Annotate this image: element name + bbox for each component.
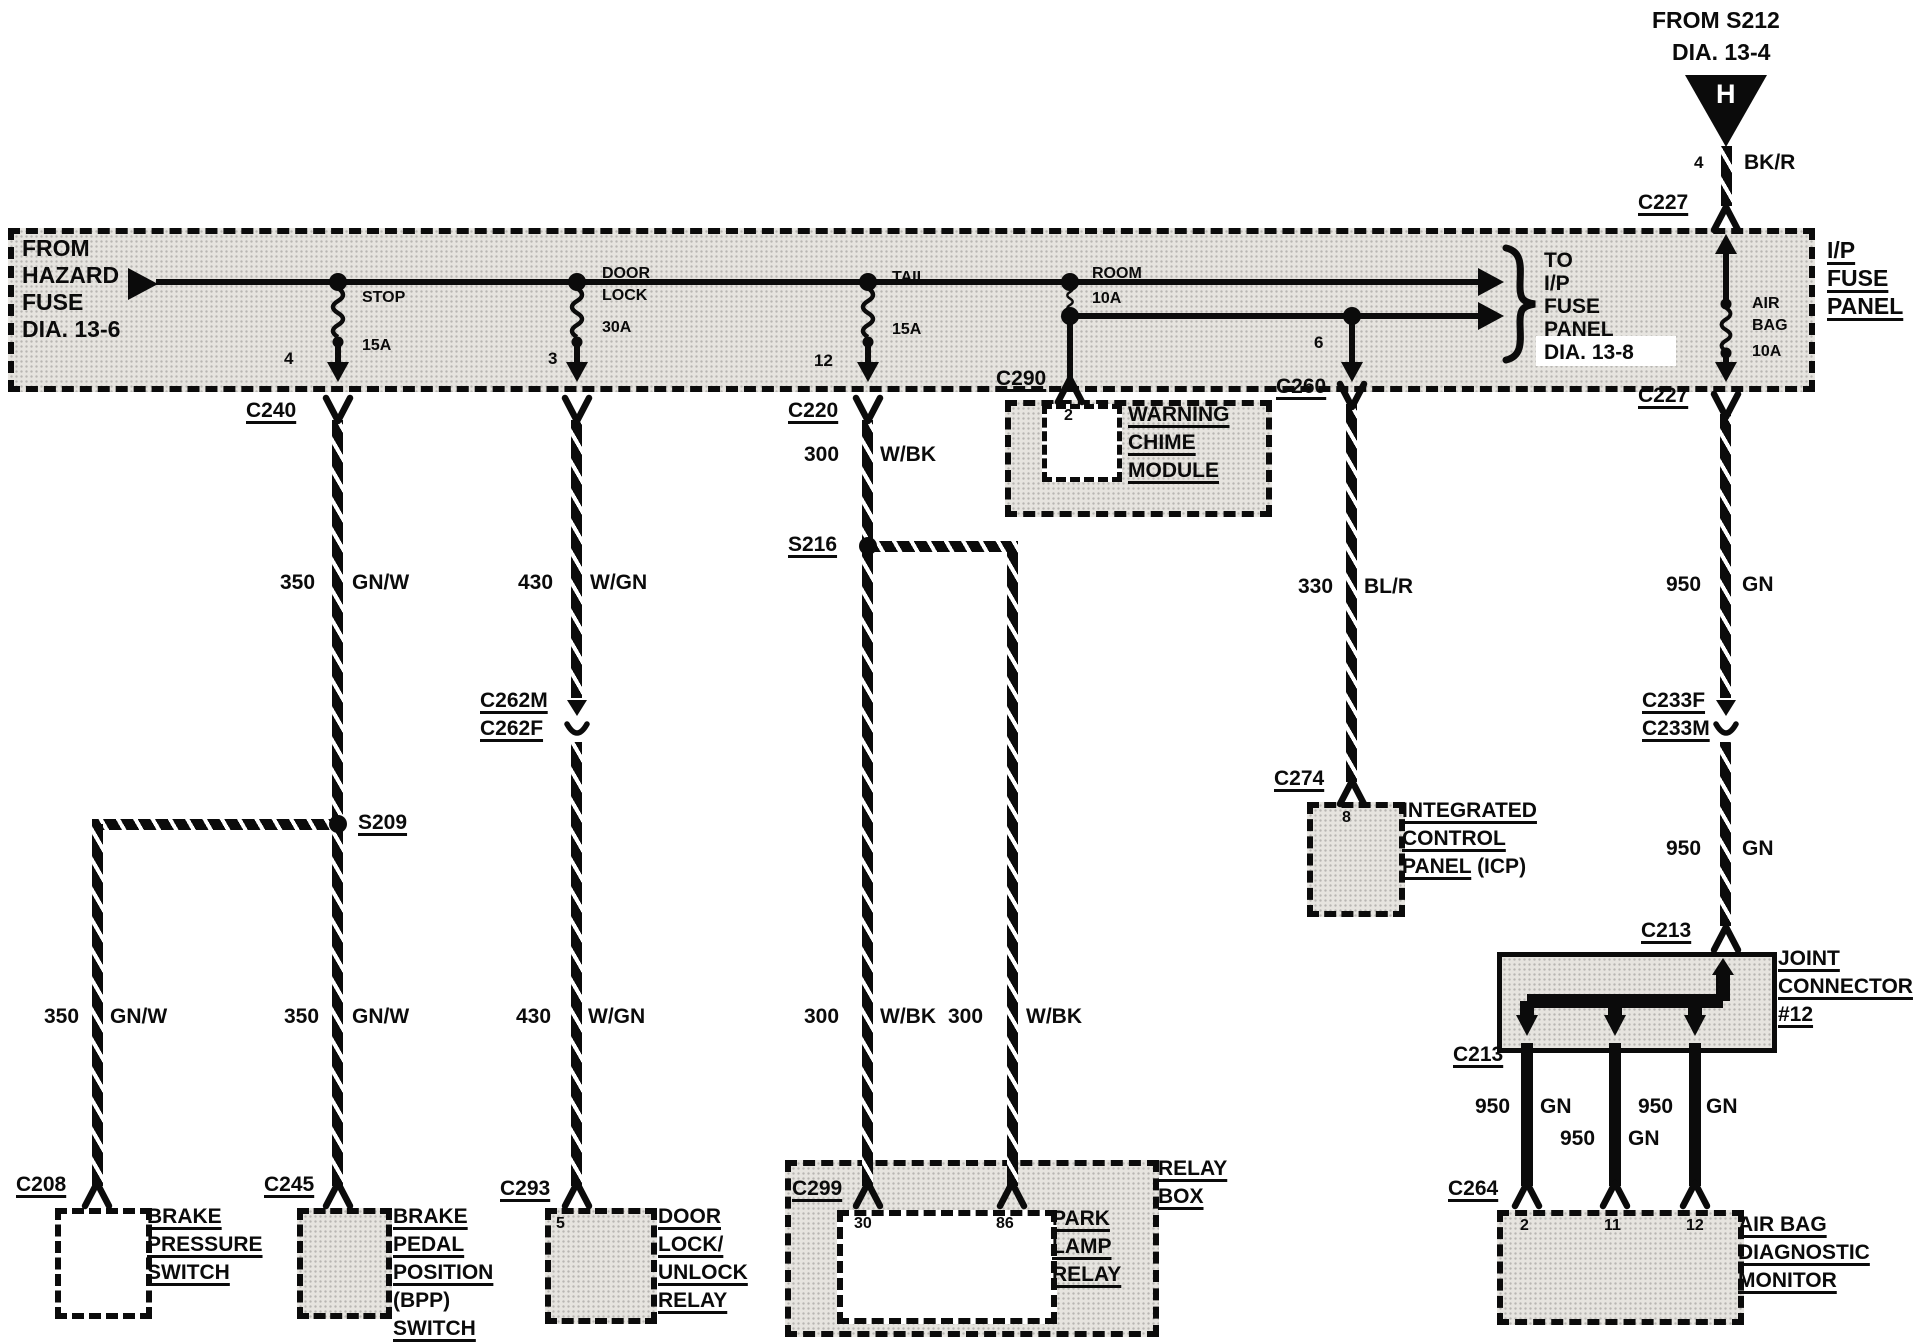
- pin-6: 6: [1314, 334, 1323, 352]
- connector-fork-c274-icon: [1337, 780, 1367, 806]
- connector-fork-c293-icon: [562, 1182, 592, 1208]
- bpp-switch-box: [297, 1208, 392, 1319]
- wire-350-main: [332, 420, 343, 1186]
- wire-950-lower: [1720, 742, 1731, 926]
- fuse-door-lock-end-dot: [572, 337, 583, 348]
- monitor-pin-2: 2: [1520, 1218, 1529, 1235]
- airbag-wire-upper: [1723, 252, 1729, 304]
- circuit-950-d1-color: GN: [1540, 1096, 1572, 1118]
- circuit-950-mid-color: GN: [1742, 838, 1774, 860]
- connector-c264: C264: [1448, 1178, 1498, 1200]
- fuse-door-lock-name2: LOCK: [602, 288, 647, 305]
- panel-name-1: I/P: [1827, 238, 1855, 262]
- circuit-950-upper-id: 950: [1666, 574, 1701, 596]
- monitor-pin-11: 11: [1604, 1218, 1621, 1235]
- circuit-300-lower2-id: 300: [948, 1006, 983, 1028]
- icp-3: PANEL (ICP): [1402, 856, 1526, 878]
- fuse-airbag-name2: BAG: [1752, 318, 1788, 335]
- circuit-950-d3-color: GN: [1706, 1096, 1738, 1118]
- monitor-pin-12: 12: [1686, 1218, 1704, 1235]
- connector-c227-top: C227: [1638, 192, 1688, 214]
- fuse-stop-name: STOP: [362, 290, 405, 307]
- warning-chime-pin: 2: [1064, 408, 1073, 425]
- wire-950-upper: [1720, 414, 1731, 698]
- monitor-2: DIAGNOSTIC: [1738, 1242, 1870, 1264]
- splice-s209-label: S209: [358, 812, 407, 834]
- fuse-tail-end-dot: [863, 337, 874, 348]
- splice-s209-dot: [329, 815, 347, 833]
- connector-fork-c299-right-icon: [997, 1182, 1027, 1208]
- wire-430-lower: [571, 742, 582, 1186]
- wire-950-drop-2: [1609, 1043, 1621, 1186]
- brake-pressure-1: BRAKE: [147, 1206, 222, 1228]
- bpp-1: BRAKE: [393, 1206, 468, 1228]
- joint-connector-2: CONNECTOR: [1778, 976, 1913, 998]
- connector-fork-c260-icon: [1337, 382, 1367, 408]
- connector-fork-c290-icon: [1055, 378, 1085, 404]
- icp-2: CONTROL: [1402, 828, 1506, 850]
- airbag-up-arrow-icon: [1715, 234, 1737, 254]
- fuse-stop-rating: 15A: [362, 338, 391, 355]
- inline-connector-c262-icon: [564, 698, 590, 744]
- connector-c240: C240: [246, 400, 296, 422]
- door-lock-relay-1: DOOR: [658, 1206, 721, 1228]
- monitor-1: AIR BAG: [1738, 1214, 1827, 1236]
- wire-330: [1346, 404, 1357, 782]
- icp-box: [1307, 802, 1405, 917]
- circuit-350-lower-id: 350: [284, 1006, 319, 1028]
- panel-name-2: FUSE: [1827, 266, 1888, 290]
- connector-c290: C290: [996, 368, 1046, 390]
- brake-pressure-switch-box: [55, 1208, 152, 1319]
- connector-fork-c264-2-icon: [1600, 1182, 1630, 1208]
- circuit-950-d2-color: GN: [1628, 1128, 1660, 1150]
- circuit-430-upper-color: W/GN: [590, 572, 647, 594]
- connector-c245: C245: [264, 1174, 314, 1196]
- to-panel-3: FUSE: [1544, 296, 1600, 318]
- circuit-300-lower1-id: 300: [804, 1006, 839, 1028]
- warning-chime-connector-box: [1042, 404, 1122, 482]
- park-lamp-relay-pin-30: 30: [854, 1216, 872, 1233]
- connector-c260: C260: [1276, 376, 1326, 398]
- connector-fork-c220-icon: [853, 396, 883, 422]
- circuit-350-lower-color: GN/W: [352, 1006, 409, 1028]
- circuit-950-upper-color: GN: [1742, 574, 1774, 596]
- circuit-300-upper-color: W/BK: [880, 444, 936, 466]
- from-hazard-4: DIA. 13-6: [22, 317, 120, 341]
- connector-fork-c245-icon: [323, 1182, 353, 1208]
- connector-c208: C208: [16, 1174, 66, 1196]
- fuse-tail-rating: 15A: [892, 322, 921, 339]
- splice-s216-dot: [859, 537, 877, 555]
- bpp-2: PEDAL: [393, 1234, 464, 1256]
- monitor-3: MONITOR: [1738, 1270, 1837, 1292]
- connector-fork-c227-top-icon: [1711, 206, 1741, 232]
- connector-c227-bottom: C227: [1638, 385, 1688, 407]
- fuse-door-lock-icon: [567, 286, 587, 338]
- to-panel-1: TO: [1544, 250, 1573, 272]
- wire-300-main: [862, 420, 873, 1186]
- brake-pressure-3: SWITCH: [147, 1262, 230, 1284]
- pin-stop: 4: [284, 350, 293, 368]
- feed-arrowhead-bottom-icon: [1478, 302, 1504, 330]
- connector-fork-c264-3-icon: [1680, 1182, 1710, 1208]
- pin-tail: 12: [814, 352, 833, 370]
- from-hazard-2: HAZARD: [22, 263, 119, 287]
- door-lock-relay-4: RELAY: [658, 1290, 727, 1312]
- icp-3-name: PANEL: [1402, 855, 1471, 878]
- connector-c293: C293: [500, 1178, 550, 1200]
- wire-430-upper: [571, 420, 582, 698]
- inline-connector-c233-icon: [1713, 698, 1739, 744]
- bpp-4: (BPP): [393, 1290, 450, 1312]
- connector-fork-c213-icon: [1711, 926, 1741, 952]
- to-panel-2: I/P: [1544, 273, 1570, 295]
- connector-c213-bottom: C213: [1453, 1044, 1503, 1066]
- feed-arrowhead-top-icon: [1478, 268, 1504, 296]
- connector-c233f: C233F: [1642, 690, 1705, 712]
- joint-connector-1: JOINT: [1778, 948, 1840, 970]
- door-lock-exit-arrow-icon: [566, 362, 588, 382]
- connector-c274: C274: [1274, 768, 1324, 790]
- connector-fork-c240-icon: [323, 396, 353, 422]
- fuse-tail-icon: [858, 286, 878, 338]
- to-panel-4: PANEL: [1544, 319, 1614, 341]
- stop-exit-arrow-icon: [327, 362, 349, 382]
- fuse-airbag-icon: [1716, 306, 1736, 352]
- fuse-door-lock-rating: 30A: [602, 320, 631, 337]
- warning-chime-2: CHIME: [1128, 432, 1196, 454]
- splice-s216-label: S216: [788, 534, 837, 556]
- wire-s216-branch-h: [868, 541, 1018, 552]
- from-s212-label: FROM S212: [1652, 8, 1780, 32]
- circuit-950-d3-id: 950: [1638, 1096, 1673, 1118]
- fuse-door-lock-name1: DOOR: [602, 266, 650, 283]
- panel-name-3: PANEL: [1827, 294, 1903, 318]
- circuit-350-upper-id: 350: [280, 572, 315, 594]
- relay-box-label-1: RELAY: [1158, 1158, 1227, 1180]
- pin-door-lock: 3: [548, 350, 557, 368]
- triangle-code: H: [1716, 80, 1736, 108]
- tail-exit-arrow-icon: [857, 362, 879, 382]
- connector-c233m: C233M: [1642, 718, 1710, 740]
- junction-pin6: [1343, 307, 1361, 325]
- connector-c262m: C262M: [480, 690, 548, 712]
- fuse-airbag-name1: AIR: [1752, 296, 1780, 313]
- fuse-room-rating: 10A: [1092, 291, 1121, 308]
- main-feed-wire: [156, 279, 1480, 285]
- wire-s209-branch-v: [92, 824, 103, 1186]
- from-hazard-3: FUSE: [22, 290, 83, 314]
- fuse-stop-end-dot: [333, 337, 344, 348]
- to-panel-5: DIA. 13-8: [1544, 342, 1634, 364]
- circuit-430-lower-id: 430: [516, 1006, 551, 1028]
- connector-fork-c299-left-icon: [853, 1182, 883, 1208]
- circuit-350-left-id: 350: [44, 1006, 79, 1028]
- fuse-room-icon: [1060, 284, 1080, 312]
- circuit-300-upper-id: 300: [804, 444, 839, 466]
- circuit-350-left-color: GN/W: [110, 1006, 167, 1028]
- connector-c220: C220: [788, 400, 838, 422]
- fuse-stop-icon: [328, 286, 348, 338]
- pin-4-top: 4: [1694, 154, 1703, 172]
- room-drop-wire: [1067, 318, 1073, 378]
- connector-c262f: C262F: [480, 718, 543, 740]
- circuit-bkr-label: BK/R: [1744, 152, 1795, 174]
- park-lamp-relay-pin-86: 86: [996, 1216, 1014, 1233]
- icp-1: INTEGRATED: [1402, 800, 1537, 822]
- warning-chime-1: WARNING: [1128, 404, 1230, 426]
- connector-fork-door-lock-icon: [562, 396, 592, 422]
- wire-950-drop-1: [1521, 1043, 1533, 1186]
- bpp-3: POSITION: [393, 1262, 493, 1284]
- room-branch-wire: [1070, 313, 1480, 319]
- circuit-300-lower1-color: W/BK: [880, 1006, 936, 1028]
- bpp-5: SWITCH: [393, 1318, 476, 1340]
- park-lamp-relay-1: PARK: [1052, 1208, 1110, 1230]
- joint-connector-bus-icon: [1502, 957, 1762, 1038]
- circuit-430-lower-color: W/GN: [588, 1006, 645, 1028]
- connector-c299: C299: [792, 1178, 842, 1200]
- circuit-300-lower2-color: W/BK: [1026, 1006, 1082, 1028]
- door-lock-relay-2: LOCK/: [658, 1234, 723, 1256]
- circuit-950-d2-id: 950: [1560, 1128, 1595, 1150]
- from-hazard-1: FROM: [22, 236, 90, 260]
- door-lock-relay-pin: 5: [556, 1216, 565, 1233]
- wire-s209-branch-h: [92, 819, 332, 830]
- joint-connector-3: #12: [1778, 1004, 1813, 1026]
- connector-fork-c208-icon: [82, 1182, 112, 1208]
- connector-c213-top: C213: [1641, 920, 1691, 942]
- airbag-exit-arrow-icon: [1715, 362, 1737, 382]
- from-s212-dia: DIA. 13-4: [1672, 40, 1770, 64]
- park-lamp-relay-3: RELAY: [1052, 1264, 1121, 1286]
- icp-pin: 8: [1342, 810, 1351, 827]
- connector-fork-c227-bottom-icon: [1711, 392, 1741, 418]
- source-arrow-icon: [128, 268, 158, 300]
- brake-pressure-2: PRESSURE: [147, 1234, 263, 1256]
- warning-chime-3: MODULE: [1128, 460, 1219, 482]
- park-lamp-relay-2: LAMP: [1052, 1236, 1112, 1258]
- circuit-430-upper-id: 430: [518, 572, 553, 594]
- fuse-tail-name: TAIL: [892, 270, 926, 287]
- wire-950-drop-3: [1689, 1043, 1701, 1186]
- wire-s216-branch-v: [1007, 541, 1018, 1186]
- circuit-330-id: 330: [1298, 576, 1333, 598]
- relay-box-label-2: BOX: [1158, 1186, 1204, 1208]
- pin6-exit-arrow-icon: [1341, 362, 1363, 382]
- fuse-room-name: ROOM: [1092, 266, 1142, 283]
- wire-bkr: [1721, 146, 1732, 206]
- door-lock-relay-3: UNLOCK: [658, 1262, 748, 1284]
- icp-3-suffix: (ICP): [1471, 855, 1526, 878]
- circuit-350-upper-color: GN/W: [352, 572, 409, 594]
- wiring-diagram: FROM S212 DIA. 13-4 H 4 BK/R C227 FROM H…: [0, 0, 1922, 1344]
- circuit-950-mid-id: 950: [1666, 838, 1701, 860]
- circuit-330-color: BL/R: [1364, 576, 1413, 598]
- fuse-airbag-rating: 10A: [1752, 344, 1781, 361]
- connector-fork-c264-1-icon: [1512, 1182, 1542, 1208]
- circuit-950-d1-id: 950: [1475, 1096, 1510, 1118]
- brace-icon: [1502, 246, 1538, 362]
